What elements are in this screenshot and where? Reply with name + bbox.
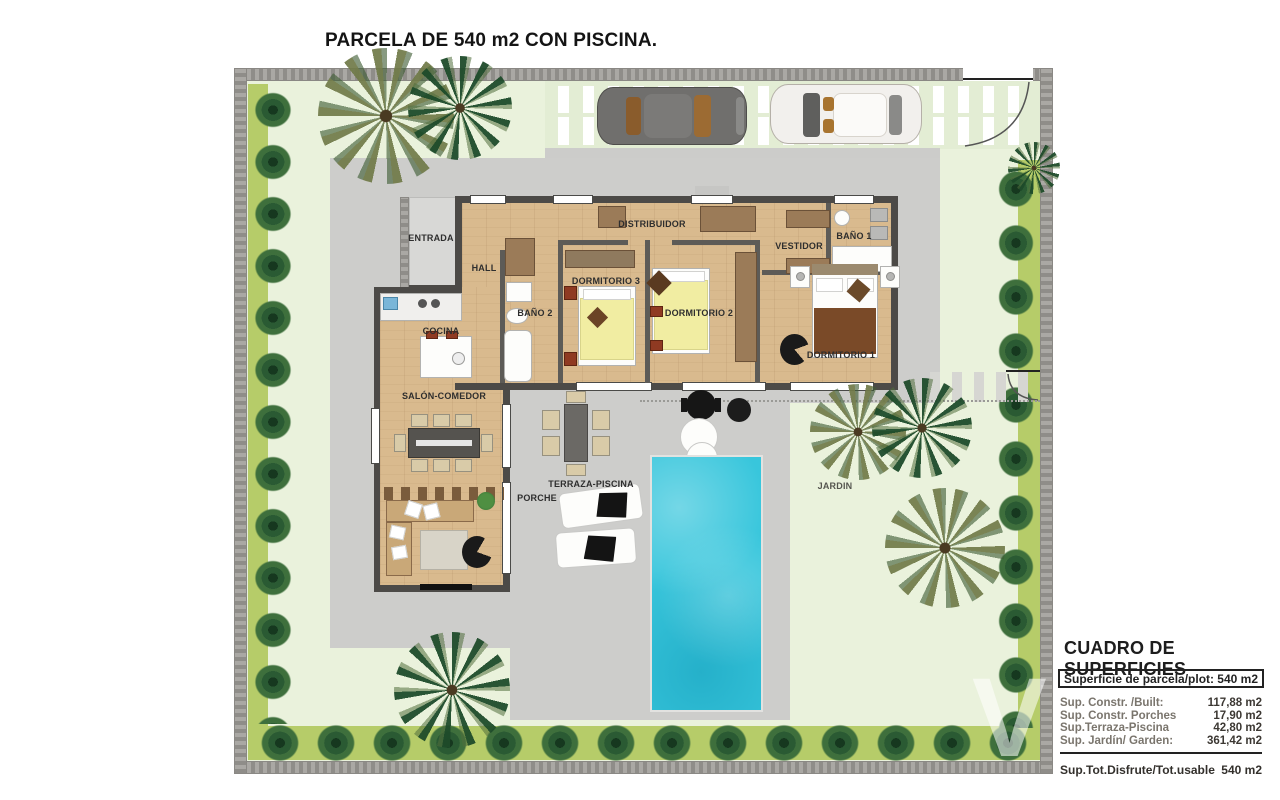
sun-lounger-2 xyxy=(555,527,637,568)
car-dark-front-bumper xyxy=(736,97,744,135)
dining-chair xyxy=(394,434,406,452)
dorm3-nightstand-2 xyxy=(564,352,577,366)
areas-table-row: Sup. Constr. /Built: 117,88 m2 xyxy=(1060,697,1262,710)
car-white-rear-window xyxy=(889,95,902,135)
entrada-side-wall xyxy=(400,197,409,292)
window-top-2 xyxy=(553,195,593,204)
dorm3-pillow xyxy=(583,289,631,300)
wing-wall-left xyxy=(455,196,462,294)
porch-chair xyxy=(566,391,586,403)
window-bottom-1 xyxy=(576,382,652,391)
dining-chair xyxy=(481,434,493,452)
dorm1-pillow-1 xyxy=(816,278,843,292)
corridor-cabinet-2 xyxy=(700,206,756,232)
watermark-letter: V xyxy=(972,662,1047,774)
palm-tree xyxy=(394,632,510,748)
areas-table-row: Sup.Terraza-Piscina 42,80 m2 xyxy=(1060,722,1262,735)
areas-table-header: Superficie de parcela/plot: 540 m2 xyxy=(1058,669,1264,688)
room-label-hall: HALL xyxy=(472,263,497,273)
vestidor-closet-1 xyxy=(786,210,830,228)
room-label-dormitorio2: DORMITORIO 2 xyxy=(665,308,733,318)
palm-tree xyxy=(1008,142,1060,194)
dining-table-runner xyxy=(416,440,472,446)
dorm1-headboard xyxy=(812,264,878,275)
car-white-windshield xyxy=(803,93,820,137)
room-label-bano2: BAÑO 2 xyxy=(517,308,552,318)
vehicle-gate-swing-arc xyxy=(963,80,1033,152)
porch-chair xyxy=(592,410,610,430)
porch-table xyxy=(564,404,588,462)
dorm2-nightstand-2 xyxy=(650,340,663,351)
palm-tree xyxy=(885,488,1005,608)
dorm3-nightstand-1 xyxy=(564,286,577,300)
dining-chair xyxy=(455,414,472,427)
stove-burner-1 xyxy=(418,299,427,308)
dining-chair xyxy=(411,459,428,472)
wing-wall-right xyxy=(891,196,898,390)
island-sink xyxy=(452,352,465,365)
room-label-bano1: BAÑO 1 xyxy=(836,231,871,241)
car-dark-windshield xyxy=(694,95,711,137)
car-white xyxy=(770,84,922,144)
floor-plan-canvas: PARCELA DE 540 m2 CON PISCINA. xyxy=(0,0,1280,800)
dorm1-fan-chair xyxy=(780,334,809,365)
room-label-vestidor: VESTIDOR xyxy=(775,241,823,251)
bath1-basin-2 xyxy=(870,226,888,240)
dorm1-blanket xyxy=(814,308,876,354)
areas-table-divider xyxy=(1060,752,1262,754)
areas-table-row: Sup. Jardín/ Garden: 361,42 m2 xyxy=(1060,735,1262,748)
partition-bath2-dorm3 xyxy=(558,240,563,383)
lounger-towel xyxy=(593,489,631,521)
dining-chair xyxy=(411,414,428,427)
lounger-towel xyxy=(582,534,618,564)
car-white-seat-1 xyxy=(823,97,834,111)
sofa-pillow xyxy=(389,525,406,541)
dining-chair xyxy=(455,459,472,472)
salon-fan-chair xyxy=(462,536,492,568)
plant xyxy=(477,492,495,510)
row-value: 17,90 m2 xyxy=(1213,710,1262,723)
total-value: 540 m2 xyxy=(1221,763,1262,777)
dorm3-headboard xyxy=(565,250,635,268)
bath2-tub xyxy=(504,330,532,382)
car-dark-rear-window xyxy=(626,97,641,135)
bath1-toilet xyxy=(834,210,850,226)
hedge-bushes-right xyxy=(990,162,1042,728)
palm-tree xyxy=(408,56,512,160)
rug xyxy=(420,530,468,570)
areas-table-header-label: Superficie de parcela/plot: xyxy=(1064,672,1214,686)
areas-table-rows: Sup. Constr. /Built: 117,88 m2 Sup. Cons… xyxy=(1060,697,1262,747)
bbq-handle-left xyxy=(681,398,687,412)
row-label: Sup. Constr. Porches xyxy=(1060,710,1176,723)
dorm1-lamp-left xyxy=(796,272,805,281)
entry-door xyxy=(691,195,733,204)
corridor-wall-1 xyxy=(558,240,628,245)
porch-chair xyxy=(542,436,560,456)
swimming-pool xyxy=(650,455,763,712)
dorm3-duvet xyxy=(580,298,634,360)
room-label-dormitorio3: DORMITORIO 3 xyxy=(572,276,640,286)
porch-chair xyxy=(566,464,586,476)
hall-closet xyxy=(505,238,535,276)
bbq-side-table xyxy=(727,398,751,422)
dining-chair xyxy=(433,459,450,472)
window-bottom-2 xyxy=(682,382,766,391)
areas-table-header-value: 540 m2 xyxy=(1217,672,1258,686)
dorm1-lamp-right xyxy=(886,272,895,281)
bath1-basin-1 xyxy=(870,208,888,222)
area-label-jardin: JARDIN xyxy=(818,481,853,491)
area-label-porche: PORCHE xyxy=(517,493,557,503)
dorm2-nightstand-1 xyxy=(650,306,663,317)
row-label: Sup.Terraza-Piscina xyxy=(1060,722,1169,735)
tv xyxy=(420,584,472,590)
hedge-bushes-left xyxy=(246,84,302,724)
areas-table-total: Sup.Tot.Disfrute/Tot.usable 540 m2 xyxy=(1060,763,1262,777)
hedge-bushes-bottom xyxy=(252,716,1040,770)
porch-slider-1 xyxy=(502,404,511,468)
kitchen-sink xyxy=(383,297,398,310)
corridor-wall-2 xyxy=(672,240,755,245)
porch-chair xyxy=(592,436,610,456)
porch-chair xyxy=(542,410,560,430)
area-label-terraza-piscina: TERRAZA-PISCINA xyxy=(548,479,634,489)
row-label: Sup. Constr. /Built: xyxy=(1060,697,1164,710)
car-white-roof xyxy=(833,93,887,137)
entry-door-step xyxy=(695,186,729,195)
car-white-seat-2 xyxy=(823,119,834,133)
car-dark-roof xyxy=(644,94,692,138)
stove-burner-2 xyxy=(431,299,440,308)
room-label-salon-comedor: SALÓN-COMEDOR xyxy=(402,391,486,401)
row-label: Sup. Jardín/ Garden: xyxy=(1060,735,1173,748)
room-label-dormitorio1: DORMITORIO 1 xyxy=(807,350,875,360)
window-top-1 xyxy=(470,195,506,204)
car-dark xyxy=(597,87,747,145)
palm-tree xyxy=(872,378,972,478)
areas-table-row: Sup. Constr. Porches 17,90 m2 xyxy=(1060,710,1262,723)
row-value: 117,88 m2 xyxy=(1208,697,1262,710)
window-top-3 xyxy=(834,195,874,204)
row-value: 361,42 m2 xyxy=(1207,735,1262,748)
room-label-cocina: COCINA xyxy=(423,326,460,336)
dining-chair xyxy=(433,414,450,427)
living-window-left xyxy=(371,408,380,464)
bath2-sink xyxy=(506,282,532,302)
dorm2-wardrobe xyxy=(735,252,757,362)
bbq-grill xyxy=(686,390,716,420)
total-label: Sup.Tot.Disfrute/Tot.usable xyxy=(1060,763,1215,777)
room-label-distribuidor: DISTRIBUIDOR xyxy=(618,219,685,229)
bbq-handle-right xyxy=(715,398,721,412)
row-value: 42,80 m2 xyxy=(1213,722,1262,735)
sofa-pillow xyxy=(391,545,408,560)
room-label-entrada: ENTRADA xyxy=(408,233,453,243)
wing-wall-top xyxy=(455,196,898,203)
